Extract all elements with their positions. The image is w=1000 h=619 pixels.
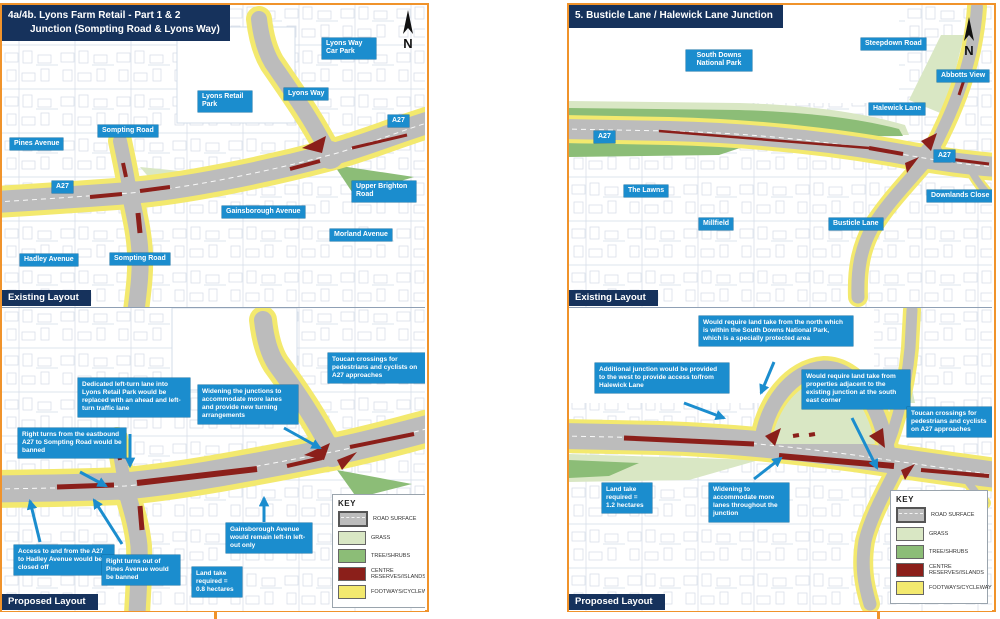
key-item-footways: FOOTWAYS/CYCLEWAYS <box>338 585 424 599</box>
map-label-gainsborough-avenue: Gainsborough Avenue <box>222 206 305 218</box>
grass-swatch <box>896 527 924 541</box>
footways-swatch <box>338 585 366 599</box>
map-label-halewick-lane: Halewick Lane <box>869 103 925 115</box>
map-busticle-proposed: Would require land take from the north w… <box>569 307 992 611</box>
callout-widening-junctions: Widening the junctions to accommodate mo… <box>198 385 298 424</box>
callout-toucan-crossings-right: Toucan crossings for pedestrians and cyc… <box>907 407 992 437</box>
callout-land-take-left: Land take required = 0.8 hectares <box>192 567 242 597</box>
page-fold-tick-right <box>877 612 880 619</box>
map-label-a27-west-right: A27 <box>594 131 615 143</box>
callout-dedicated-left-turn: Dedicated left-turn lane into Lyons Reta… <box>78 378 190 417</box>
panel-busticle-halewick: 5. Busticle Lane / Halewick Lane Junctio… <box>567 3 996 612</box>
key-item-tree-shrubs: TREE/SHRUBS <box>338 549 424 563</box>
section-bar-proposed-left: Proposed Layout <box>2 594 98 610</box>
map-label-upper-brighton-road: Upper Brighton Road <box>352 181 416 202</box>
map-label-south-downs: South Downs National Park <box>686 50 752 71</box>
footways-swatch <box>896 581 924 595</box>
map-lyons-existing: Pines Avenue Sompting Road A27 Lyons Ret… <box>2 5 425 307</box>
map-label-a27-east-right: A27 <box>934 150 955 162</box>
map-label-millfield: Millfield <box>699 218 733 230</box>
callout-widening-throughout: Widening to accommodate more lanes throu… <box>709 483 789 522</box>
map-label-lyons-way-car-park: Lyons Way Car Park <box>322 38 376 59</box>
key-item-footways: FOOTWAYS/CYCLEWAYS <box>896 581 982 595</box>
title-right: 5. Busticle Lane / Halewick Lane Junctio… <box>575 10 773 21</box>
callout-gainsborough-left-in-out: Gainsborough Avenue would remain left-in… <box>226 523 312 553</box>
map-label-sompting-road-south: Sompting Road <box>110 253 170 265</box>
callout-land-take-right: Land take required = 1.2 hectares <box>602 483 652 513</box>
map-label-hadley-avenue: Hadley Avenue <box>20 254 78 266</box>
grass-swatch <box>338 531 366 545</box>
map-label-morland-avenue: Morland Avenue <box>330 229 392 241</box>
key-item-grass: GRASS <box>338 531 424 545</box>
road-surface-swatch <box>896 507 926 523</box>
map-drawing-busticle-existing <box>569 5 992 307</box>
map-lyons-proposed: Dedicated left-turn lane into Lyons Reta… <box>2 307 425 611</box>
map-label-abbotts-view: Abbotts View <box>937 70 989 82</box>
map-busticle-existing: South Downs National Park Steepdown Road… <box>569 5 992 307</box>
map-label-a27-east: A27 <box>388 115 409 127</box>
key-title: KEY <box>896 495 982 504</box>
map-label-steepdown-road: Steepdown Road <box>861 38 926 50</box>
key-item-centre-reserves: CENTRE RESERVES/ISLANDS <box>338 567 424 581</box>
centre-reserves-swatch <box>896 563 924 577</box>
section-bar-existing-right: Existing Layout <box>569 290 658 306</box>
panel-lyons-farm: 4a/4b. Lyons Farm Retail - Part 1 & 2 Ju… <box>0 3 429 612</box>
svg-text:N: N <box>964 43 973 58</box>
map-label-pines-avenue: Pines Avenue <box>10 138 63 150</box>
map-label-lyons-retail-park: Lyons Retail Park <box>198 91 252 112</box>
road-surface-swatch <box>338 511 368 527</box>
callout-toucan-crossings-left: Toucan crossings for pedestrians and cyc… <box>328 353 425 383</box>
page-fold-tick-left <box>214 612 217 619</box>
tree-shrubs-swatch <box>896 545 924 559</box>
map-label-the-lawns: The Lawns <box>624 185 668 197</box>
centre-reserves-swatch <box>338 567 366 581</box>
callout-hadley-access-closed: Access to and from the A27 to Hadley Ave… <box>14 545 114 575</box>
panel-right-title: 5. Busticle Lane / Halewick Lane Junctio… <box>569 5 783 28</box>
callout-right-turns-banned-a27: Right turns from the eastbound A27 to So… <box>18 428 126 458</box>
section-bar-proposed-right: Proposed Layout <box>569 594 665 610</box>
compass-north-icon: N <box>961 17 977 64</box>
title-line1: 4a/4b. Lyons Farm Retail - Part 1 & 2 <box>8 10 180 21</box>
map-label-sompting-road-north: Sompting Road <box>98 125 158 137</box>
map-label-lyons-way: Lyons Way <box>284 88 328 100</box>
map-label-downlands-close: Downlands Close <box>927 190 992 202</box>
key-title: KEY <box>338 499 424 508</box>
key-box-left: KEY ROAD SURFACE GRASS TREE/SHRUBS CENTR… <box>332 494 425 608</box>
junction-maps-page: 4a/4b. Lyons Farm Retail - Part 1 & 2 Ju… <box>0 0 1000 619</box>
compass-north-icon: N <box>400 10 416 57</box>
callout-additional-junction-west: Additional junction would be provided to… <box>595 363 729 393</box>
key-item-road-surface: ROAD SURFACE <box>896 507 982 523</box>
title-line2: Junction (Sompting Road & Lyons Way) <box>30 23 220 37</box>
tree-shrubs-swatch <box>338 549 366 563</box>
callout-land-take-north-sdnp: Would require land take from the north w… <box>699 316 853 346</box>
callout-land-take-se-corner: Would require land take from properties … <box>802 370 910 409</box>
svg-text:N: N <box>403 36 412 51</box>
key-item-grass: GRASS <box>896 527 982 541</box>
map-label-a27-west: A27 <box>52 181 73 193</box>
key-box-right: KEY ROAD SURFACE GRASS TREE/SHRUBS CENTR… <box>890 490 988 604</box>
key-item-centre-reserves: CENTRE RESERVES/ISLANDS <box>896 563 982 577</box>
key-item-road-surface: ROAD SURFACE <box>338 511 424 527</box>
panel-left-title: 4a/4b. Lyons Farm Retail - Part 1 & 2 Ju… <box>2 5 230 41</box>
key-item-tree-shrubs: TREE/SHRUBS <box>896 545 982 559</box>
callout-pines-right-turns-banned: Right turns out of Pines Avenue would be… <box>102 555 180 585</box>
map-label-busticle-lane: Busticle Lane <box>829 218 883 230</box>
section-bar-existing-left: Existing Layout <box>2 290 91 306</box>
